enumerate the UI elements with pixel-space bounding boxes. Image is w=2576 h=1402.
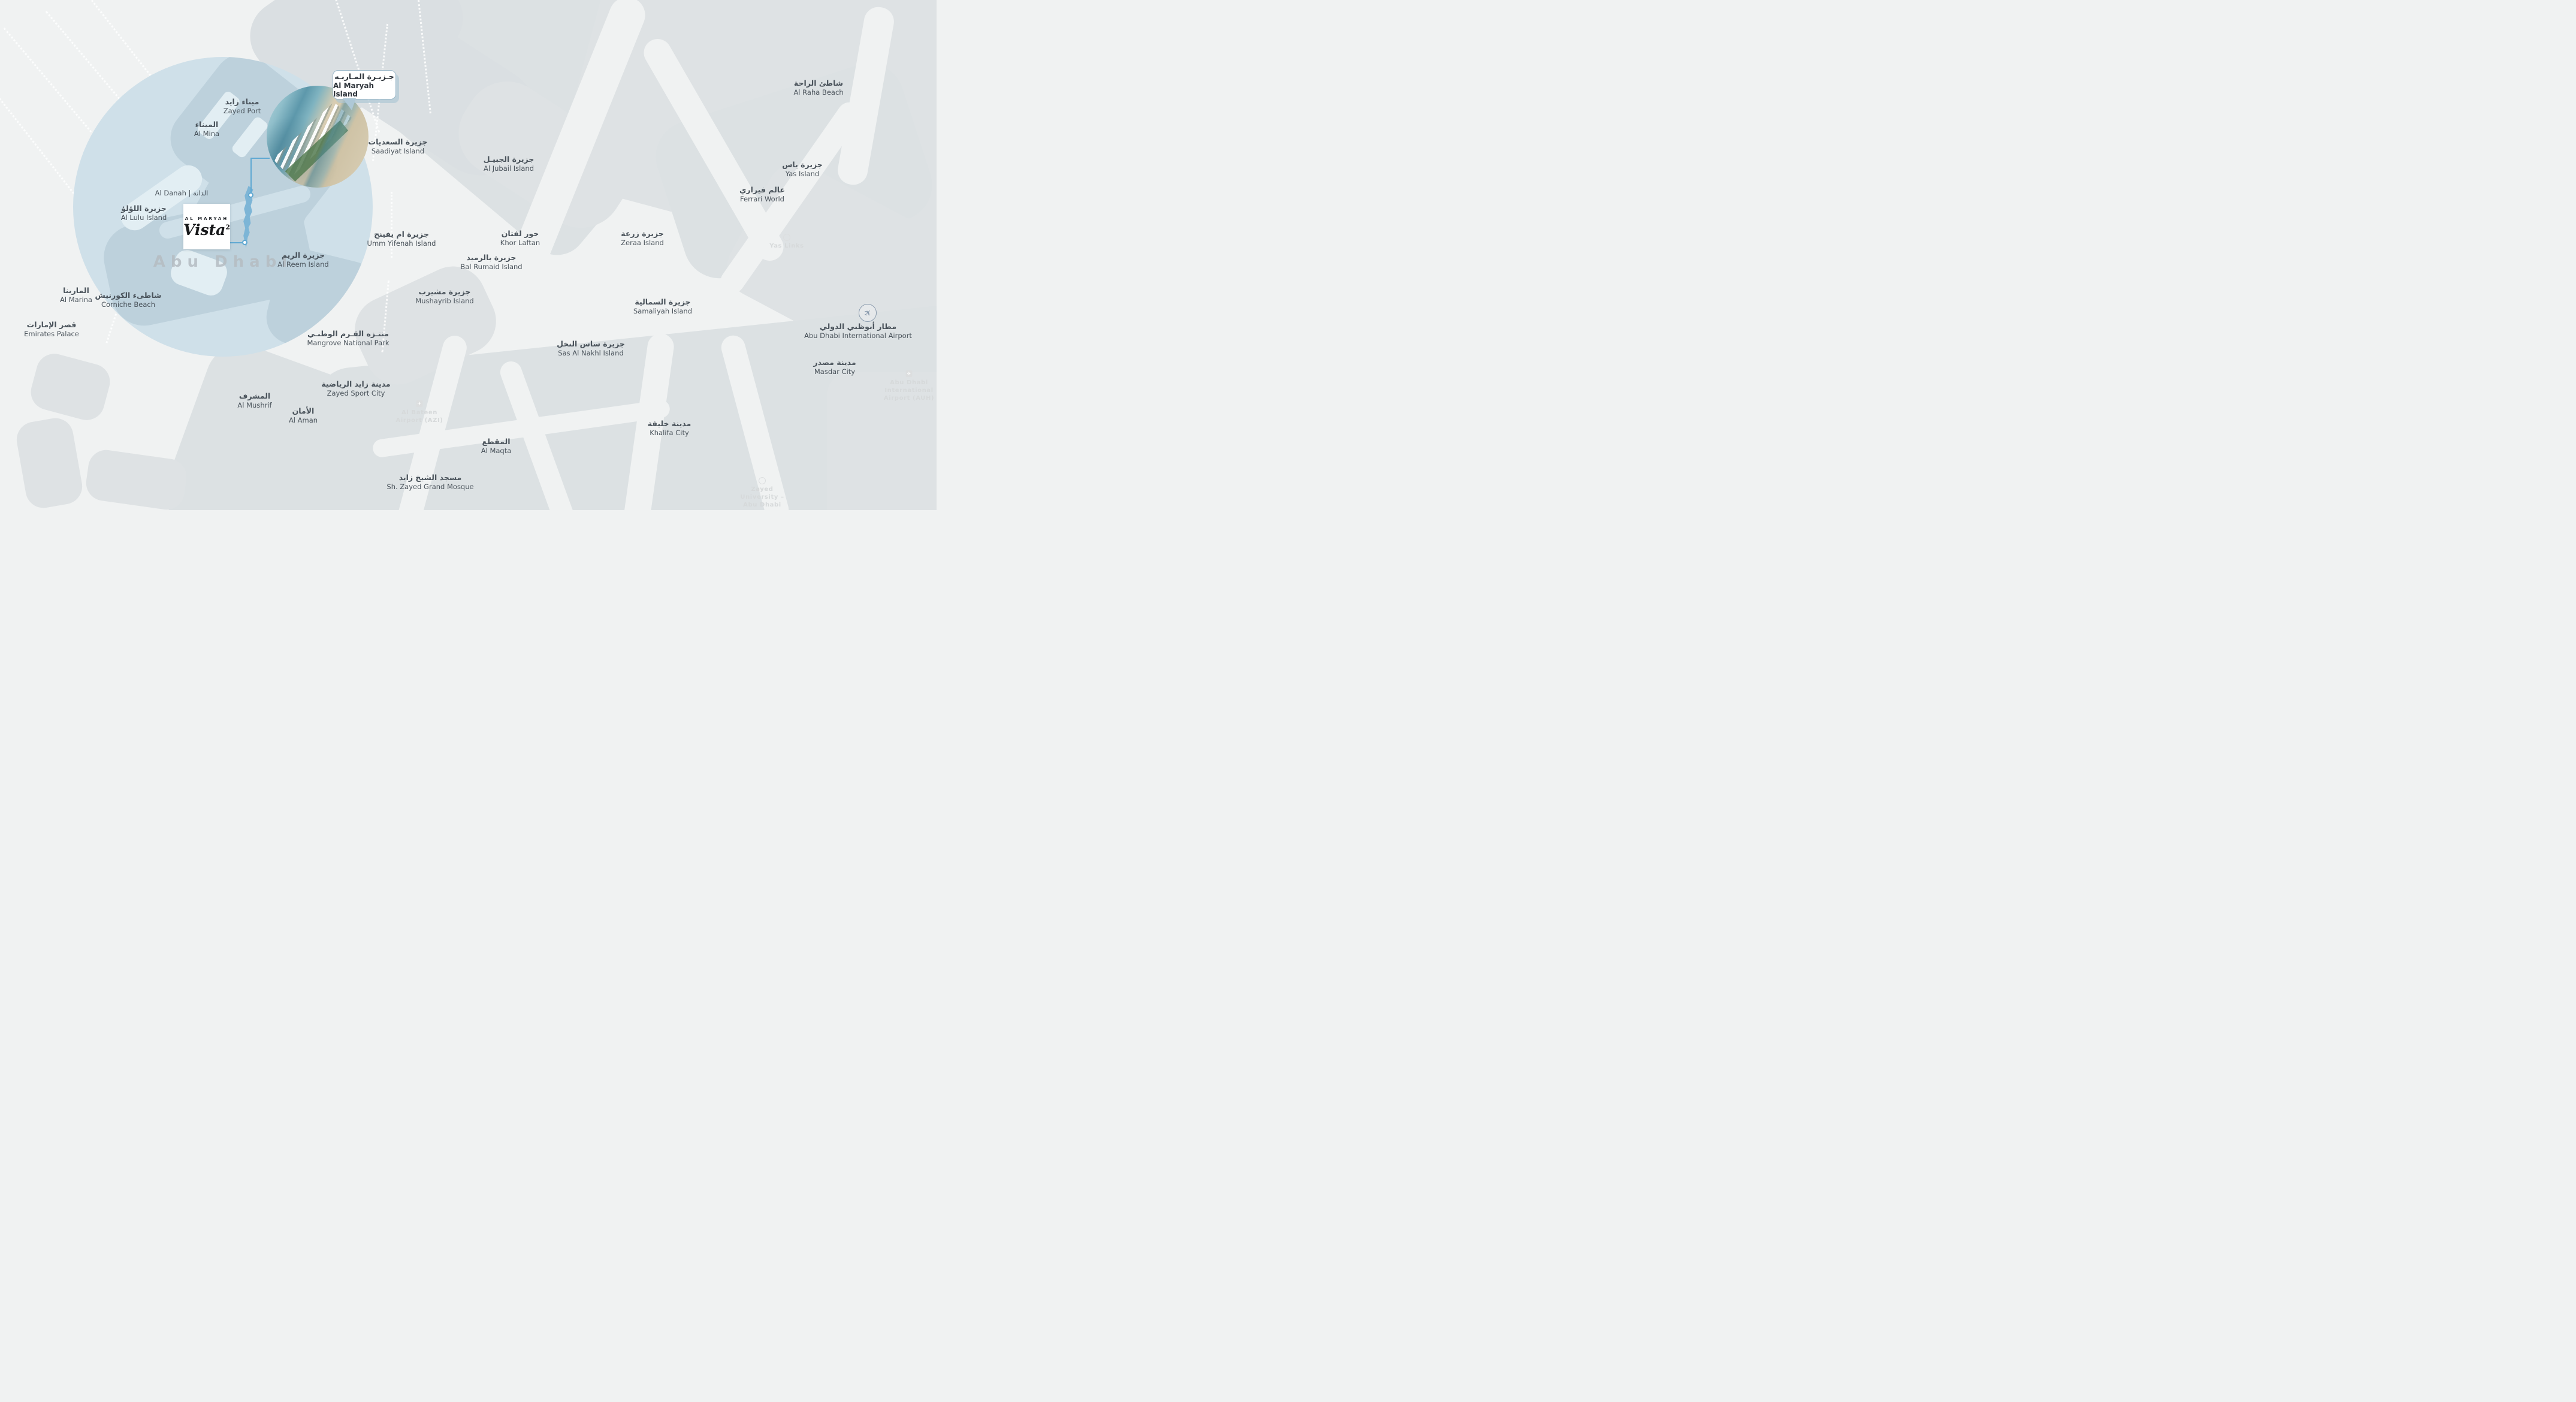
map-label-al-maqta: المقطعAl Maqta <box>481 437 512 455</box>
label-text-en: Al Mushrif <box>237 401 271 409</box>
label-text-en: Saadiyat Island <box>369 147 428 155</box>
label-text-ar: مدينة زايد الرياضية <box>321 379 390 388</box>
label-text-en: Zeraa Island <box>621 239 664 247</box>
label-text-en: Al Reem Island <box>277 260 328 269</box>
label-text-ar: المارينا <box>60 286 92 295</box>
label-text-ar: جزيرة السعديات <box>369 137 428 146</box>
map-label-al-danah: Al Danah | الدانة <box>155 188 209 197</box>
label-text-en: Al Jubail Island <box>484 164 534 173</box>
label-text-ar: عالم فيراري <box>739 185 785 194</box>
label-text-ar: شاطىء الكورنيش <box>95 291 162 300</box>
label-text-en: Umm Yifenah Island <box>367 239 436 248</box>
map-label-al-marina: الماريناAl Marina <box>60 286 92 304</box>
label-text-en: Al Marina <box>60 296 92 304</box>
island-marker-top <box>248 192 253 198</box>
map-label-samaliyah: جزيرة السماليةSamaliyah Island <box>633 297 692 315</box>
airplane-icon: ✈ <box>859 304 877 322</box>
label-text-ar: مدينة مصدر <box>813 358 856 367</box>
label-text-en: Al Aman <box>289 416 318 424</box>
label-text-ar: خور لفتان <box>500 229 540 238</box>
map-label-masdar: مدينة مصدرMasdar City <box>813 358 856 376</box>
map-label-al-lulu: جزيرة اللؤلؤAl Lulu Island <box>121 204 167 222</box>
label-text-en: Yas Island <box>782 170 823 178</box>
label-text-en: Al Raha Beach <box>793 88 843 97</box>
map-label-zayed-sport: مدينة زايد الرياضيةZayed Sport City <box>321 379 390 397</box>
map-label-mangrove: منتـزه القـرم الوطنـيMangrove National P… <box>307 329 389 347</box>
label-text-ar: ميناء زايد <box>224 97 261 106</box>
map-label-mushayrib: جزيرة مشيربMushayrib Island <box>415 287 473 305</box>
callout-title-en: Al Maryah Island <box>333 82 395 98</box>
label-text-en: Ferrari World <box>739 195 785 203</box>
label-text-en: Sas Al Nakhl Island <box>557 349 625 357</box>
label-text-en: Masdar City <box>813 367 856 376</box>
faint-label-al-bateen-airport: Al BateenAirport (AZI) <box>396 409 443 424</box>
map-label-umm-yifenah: جزيرة ام يفينحUmm Yifenah Island <box>367 230 436 248</box>
label-text-en: Khalifa City <box>648 429 691 437</box>
label-text-ar: جزيرة ساس النخل <box>557 339 625 348</box>
map-label-corniche: شاطىء الكورنيشCorniche Beach <box>95 291 162 309</box>
logo-brand-top: AL MARYAH <box>185 216 228 221</box>
label-text-ar: الميناء <box>194 120 219 129</box>
dotted-ray <box>391 192 392 258</box>
landmass-shape <box>27 349 114 424</box>
al-maryah-callout: جـزيـرة المـاريـه Al Maryah Island <box>333 70 396 100</box>
map-label-al-aman: الأمانAl Aman <box>289 406 318 424</box>
logo-brand-script: Vista2 <box>183 222 230 237</box>
map-label-al-raha: شاطئ الراحةAl Raha Beach <box>793 79 843 97</box>
map-canvas: Abu Dhabi جـزيـرة المـاريـه Al Maryah Is… <box>0 0 937 510</box>
label-text-en: Zayed Sport City <box>321 389 390 397</box>
al-maryah-vista-logo: AL MARYAH Vista2 <box>183 204 230 249</box>
label-text-ar: جزيرة اللؤلؤ <box>121 204 167 213</box>
callout-pointer <box>343 98 356 110</box>
label-text-en: Bal Rumaid Island <box>460 263 522 271</box>
label-text-en: Samaliyah Island <box>633 307 692 315</box>
poi-circle-icon <box>759 477 766 484</box>
map-label-emirates-palace: قصر الإماراتEmirates Palace <box>24 320 79 338</box>
label-text-ar: جزيرة زرعة <box>621 229 664 238</box>
label-text-ar: قصر الإمارات <box>24 320 79 329</box>
map-label-abu-dhabi-intl: مطار أبوظبي الدوليAbu Dhabi Internationa… <box>804 322 912 340</box>
plane-square-icon: ✈ <box>416 400 423 407</box>
map-label-al-jubail: جزيرة الجبيـلAl Jubail Island <box>484 155 534 173</box>
label-text-en: Zayed Port <box>224 107 261 115</box>
faint-label-zayed-university: ZayedUniversity –Abu DhabiCampus <box>740 486 784 510</box>
map-label-al-reem: جزيرة الريمAl Reem Island <box>277 251 328 269</box>
label-text-ar: جزيرة الريم <box>277 251 328 260</box>
map-label-saadiyat: جزيرة السعدياتSaadiyat Island <box>369 137 428 155</box>
map-label-al-mina: الميناءAl Mina <box>194 120 219 138</box>
label-text-ar: الأمان <box>289 406 318 415</box>
label-text-ar: جزيرة ام يفينح <box>367 230 436 239</box>
map-label-khor-laftan: خور لفتانKhor Laftan <box>500 229 540 247</box>
map-label-ferrari-world: عالم فيراريFerrari World <box>739 185 785 203</box>
label-text-ar: المشرف <box>237 391 271 400</box>
plane-square-icon: ✈ <box>906 370 913 377</box>
label-text-en: Mushayrib Island <box>415 297 473 305</box>
label-text-en: Al Lulu Island <box>121 213 167 222</box>
label-text-en: Al Maqta <box>481 447 512 455</box>
label-text-ar: مسجد الشيخ زايد <box>386 473 473 482</box>
label-text-en: Sh. Zayed Grand Mosque <box>386 483 473 491</box>
map-label-khalifa-city: مدينة خليفةKhalifa City <box>648 419 691 437</box>
label-text-en: Abu Dhabi International Airport <box>804 331 912 340</box>
label-text-en: Al Mina <box>194 129 219 138</box>
label-text-ar: جزيرة السمالية <box>633 297 692 306</box>
label-text-ar: جزيرة ياس <box>782 160 823 169</box>
landmass-shape <box>14 415 85 510</box>
label-text-en: Corniche Beach <box>95 300 162 309</box>
landmass-shape <box>84 448 189 510</box>
label-text-ar: جزيرة مشيرب <box>415 287 473 296</box>
map-label-grand-mosque: مسجد الشيخ زايدSh. Zayed Grand Mosque <box>386 473 473 491</box>
poi-circle-icon <box>783 234 790 241</box>
callout-title-ar: جـزيـرة المـاريـه <box>334 72 394 81</box>
faint-label-yas-links: Yas Links <box>769 242 804 250</box>
map-label-bal-rumaid: جزيرة بالرميدBal Rumaid Island <box>460 253 522 271</box>
label-text-ar: المقطع <box>481 437 512 446</box>
city-watermark: Abu Dhabi <box>153 253 292 271</box>
map-label-yas-island: جزيرة ياسYas Island <box>782 160 823 178</box>
label-text-ar: شاطئ الراحة <box>793 79 843 88</box>
map-label-zayed-port: ميناء زايدZayed Port <box>224 97 261 115</box>
label-text-ar: منتـزه القـرم الوطنـي <box>307 329 389 338</box>
faint-label-auh-airport: Abu DhabiInternationalAirport (AUH) <box>884 379 934 402</box>
label-text-ar: مطار أبوظبي الدولي <box>804 322 912 331</box>
label-text-en: Emirates Palace <box>24 330 79 338</box>
label-text: Al Danah | الدانة <box>155 189 209 197</box>
island-marker-bottom <box>242 240 247 245</box>
map-label-sas-al-nakhl: جزيرة ساس النخلSas Al Nakhl Island <box>557 339 625 357</box>
label-text-ar: جزيرة الجبيـل <box>484 155 534 164</box>
label-text-ar: مدينة خليفة <box>648 419 691 428</box>
map-label-zeraa: جزيرة زرعةZeraa Island <box>621 229 664 247</box>
label-text-ar: جزيرة بالرميد <box>460 253 522 262</box>
label-text-en: Mangrove National Park <box>307 339 389 347</box>
connector-line-vertical <box>250 158 252 195</box>
map-label-al-mushrif: المشرفAl Mushrif <box>237 391 271 409</box>
label-text-en: Khor Laftan <box>500 239 540 247</box>
